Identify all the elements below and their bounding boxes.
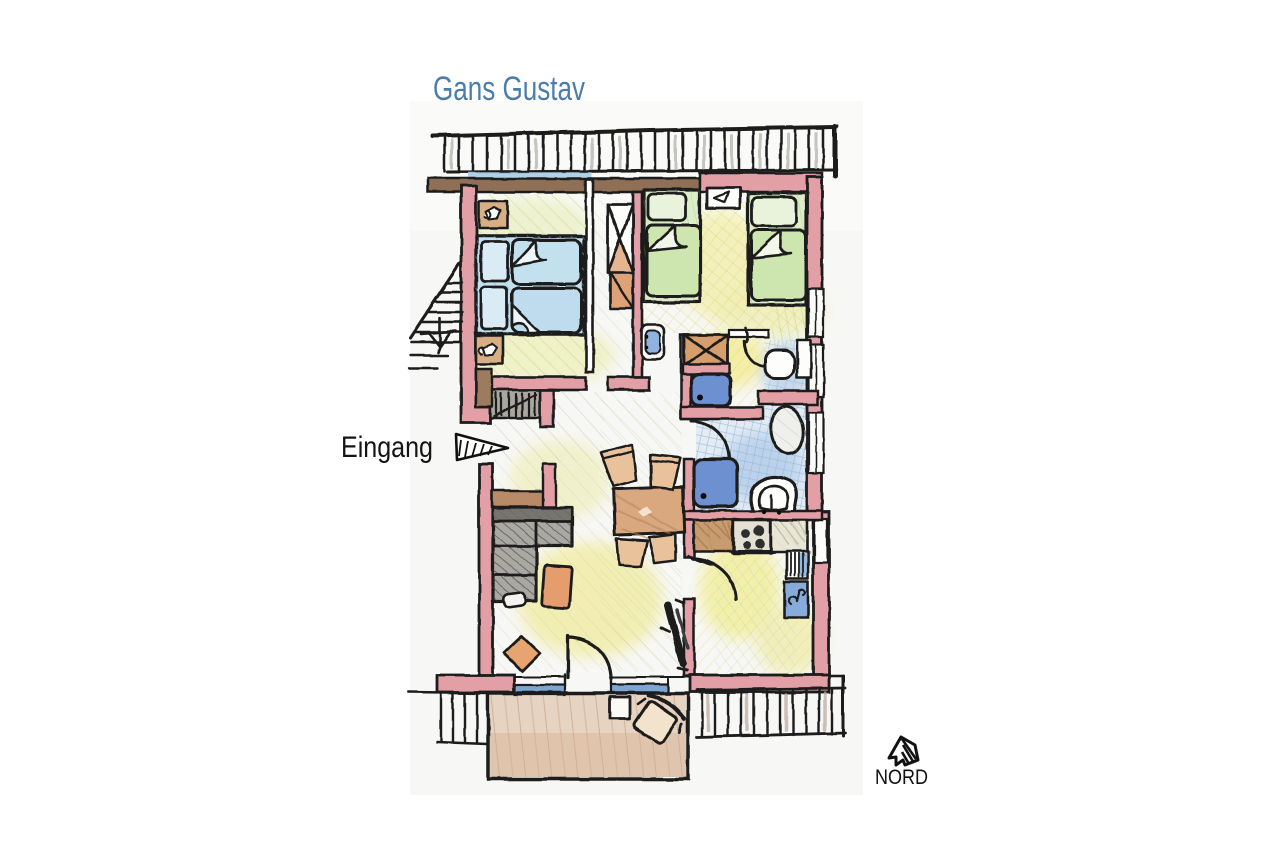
svg-text:Gans Gustav: Gans Gustav — [433, 70, 585, 108]
svg-text:NORD: NORD — [875, 766, 928, 789]
svg-text:Eingang: Eingang — [341, 431, 433, 464]
